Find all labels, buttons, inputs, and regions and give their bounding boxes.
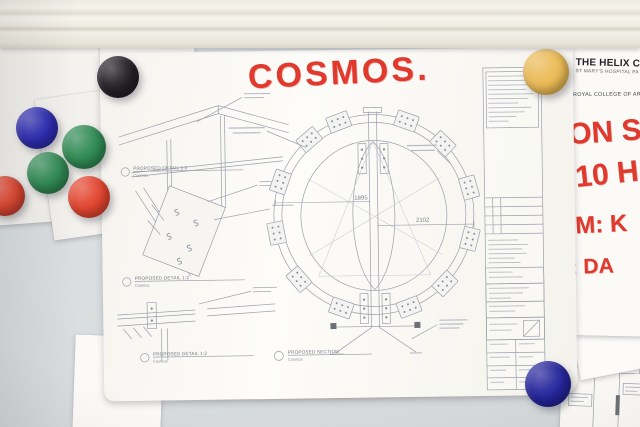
title-block — [483, 67, 545, 390]
magnet-green-lower — [27, 152, 69, 194]
detail-3-label: PROPOSED DETAIL 1:2 Cosmos — [141, 350, 254, 364]
svg-text:Cosmos: Cosmos — [133, 173, 148, 178]
svg-text:PROPOSED DETAIL 1:2: PROPOSED DETAIL 1:2 — [153, 351, 208, 357]
letterhead-org: ROYAL COLLEGE OF AR — [573, 92, 640, 98]
cosmos-section-drawing: 1895 2102 — [228, 106, 482, 355]
magnet-black — [97, 56, 139, 98]
svg-text:PROPOSED SECTION: PROPOSED SECTION — [288, 349, 339, 355]
plan-note-boxes — [569, 382, 640, 409]
beam-detail-drawing — [118, 93, 290, 209]
detail-2-label: PROPOSED DETAIL 1:2 Cosmos — [123, 274, 245, 288]
letterhead-title: THE HELIX C — [576, 57, 640, 69]
cosmos-technical-drawing: PROPOSED DETAIL 1:2 Cosmos — [100, 47, 578, 402]
svg-text:2102: 2102 — [416, 218, 430, 224]
marker-note-line: 10 H — [574, 155, 640, 195]
magnet-green-upper — [62, 125, 106, 169]
whiteboard-frame-rail — [0, 0, 640, 48]
magnet-red-center — [68, 176, 110, 218]
cosmos-drawing-sheet: COSMOS. PROPOSED DETAIL 1:2 — [100, 47, 578, 402]
magnet-blue — [16, 107, 58, 149]
section-label: PROPOSED SECTION Cosmos — [274, 349, 372, 362]
dimensions: 1895 2102 — [276, 194, 474, 230]
svg-text:Cosmos: Cosmos — [153, 358, 168, 363]
magnet-yellow — [523, 49, 569, 95]
marker-note-line: ON S — [567, 113, 640, 152]
letterhead-subtitle: ST MARY'S HOSPITAL PA — [575, 69, 639, 75]
svg-text:Cosmos: Cosmos — [288, 357, 303, 362]
whiteboard-photo: DOOR SHUTTE HD-08 THE HELIX C ST MARY'S … — [0, 0, 640, 427]
support-legs — [329, 322, 421, 354]
svg-text:1895: 1895 — [354, 196, 368, 202]
flange-detail-drawing — [117, 287, 278, 361]
magnet-navy — [525, 361, 571, 407]
svg-text:Cosmos: Cosmos — [135, 283, 150, 288]
svg-text:PROPOSED DETAIL 1:2: PROPOSED DETAIL 1:2 — [133, 165, 188, 171]
svg-text:PROPOSED DETAIL 1:2: PROPOSED DETAIL 1:2 — [135, 275, 190, 281]
